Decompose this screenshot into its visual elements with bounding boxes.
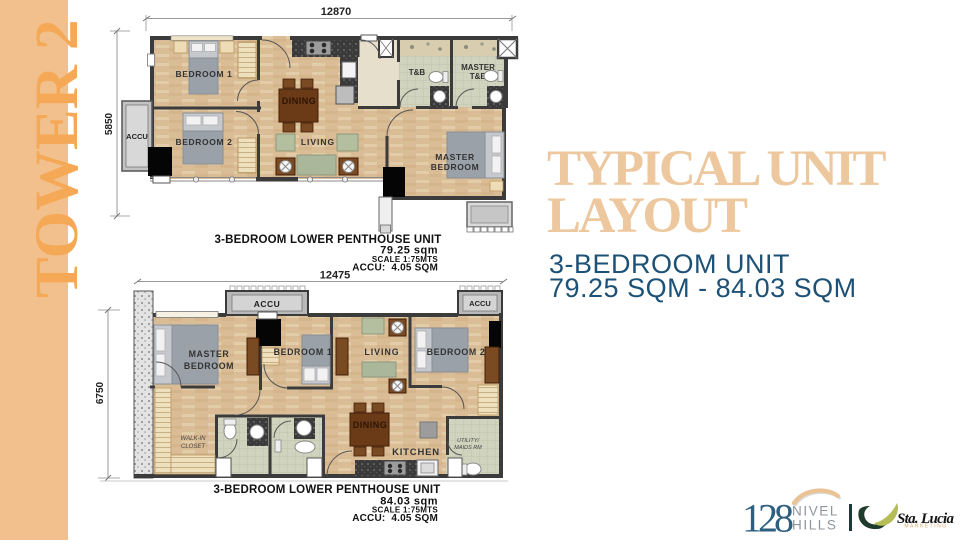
svg-text:5850: 5850 [104,112,115,135]
svg-text:CLOSET: CLOSET [181,444,206,450]
svg-text:ACCU: ACCU [126,132,148,141]
svg-text:BEDROOM 2: BEDROOM 2 [176,137,233,147]
svg-text:LIVING: LIVING [301,137,335,147]
svg-text:DINING: DINING [353,420,388,430]
svg-text:MARKETING: MARKETING [904,524,947,530]
svg-text:MASTER: MASTER [189,349,230,359]
svg-text:NIVEL: NIVEL [792,504,839,519]
svg-text:HILLS: HILLS [792,518,838,533]
svg-text:ACCU: ACCU [254,299,281,309]
svg-text:BEDROOM: BEDROOM [431,162,480,172]
svg-text:MAIDS RM: MAIDS RM [454,445,482,451]
svg-text:T&B: T&B [409,68,426,77]
svg-text:ACCU: ACCU [469,299,491,308]
svg-text:WALK-IN: WALK-IN [181,436,207,442]
svg-text:12870: 12870 [321,6,352,18]
svg-text:6750: 6750 [95,381,106,404]
svg-text:BEDROOM: BEDROOM [184,361,234,371]
svg-text:128: 128 [742,496,793,541]
svg-text:LIVING: LIVING [364,347,399,357]
svg-text:BEDROOM 1: BEDROOM 1 [176,69,233,79]
svg-text:KITCHEN: KITCHEN [392,447,440,458]
svg-text:DINING: DINING [282,96,317,106]
svg-text:12475: 12475 [320,270,351,282]
svg-text:ACCU: 4.05 SQM: ACCU: 4.05 SQM [352,263,438,274]
svg-text:BEDROOM 1: BEDROOM 1 [274,347,333,357]
svg-text:UTILITY/: UTILITY/ [457,438,479,444]
svg-text:ACCU: 4.05 SQM: ACCU: 4.05 SQM [352,513,438,524]
svg-text:3-BEDROOM LOWER PENTHOUSE UNIT: 3-BEDROOM LOWER PENTHOUSE UNIT [213,484,440,496]
svg-text:MASTER: MASTER [435,152,475,162]
svg-text:BEDROOM 2: BEDROOM 2 [427,347,486,357]
